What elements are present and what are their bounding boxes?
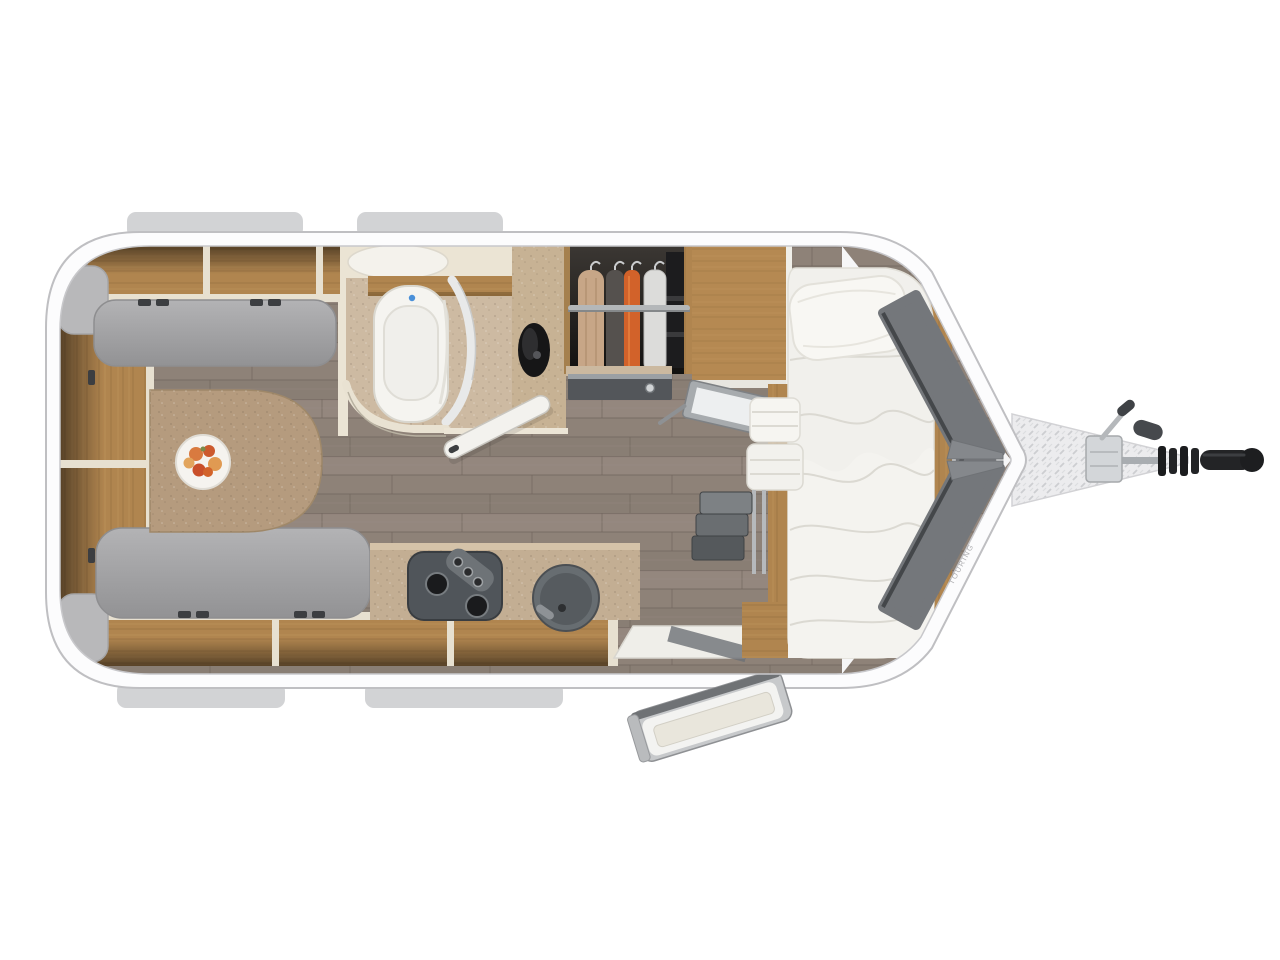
counter-back-edge: [370, 543, 640, 550]
toilet: [374, 286, 448, 422]
cassette-knob: [533, 351, 541, 359]
garment-gray: [606, 270, 624, 382]
top-shelf-divider-2: [316, 246, 323, 298]
garment-white: [644, 270, 666, 372]
step-rail-2: [762, 490, 766, 574]
dinette-bench-top: [94, 300, 336, 366]
wardrobe-drawer-edge: [568, 374, 672, 379]
kitchen: [370, 543, 640, 631]
floorplan-canvas: TOURING: [0, 0, 1280, 960]
bottom-shelf-divider-1: [272, 616, 279, 666]
dinette-bench-bottom: [96, 528, 370, 618]
hob-knob-2: [464, 568, 473, 577]
entry-step: [614, 626, 749, 662]
toilet-seat: [384, 306, 438, 400]
hitch-coupling-head: [1240, 448, 1264, 472]
step-tread-3: [692, 536, 744, 560]
kitchen-sink: [533, 565, 599, 631]
hob-knob-3: [474, 578, 483, 587]
a-frame-hitch: [1012, 398, 1264, 506]
hob-cooktop: [408, 545, 502, 620]
hob-burner-2: [466, 595, 488, 617]
hob-burner-1: [426, 573, 448, 595]
wardrobe-rail-shadow: [568, 310, 690, 312]
coupling-housing: [1086, 436, 1122, 482]
towel-stack: [747, 398, 803, 490]
step-tread-1: [700, 492, 752, 514]
handbrake-lever: [1131, 418, 1164, 442]
rear-shelf-divider: [60, 460, 154, 468]
hob-knob-1: [454, 558, 463, 567]
caravan-interior: [58, 245, 1011, 674]
wardrobe-shelf-2: [666, 332, 684, 337]
step-rail-1: [752, 490, 756, 574]
toilet-flush-button: [409, 295, 415, 301]
bed-foot-panel: [742, 602, 788, 658]
vanity-basin: [348, 245, 448, 279]
fruit-plate: [176, 435, 230, 489]
top-shelf-shadow: [88, 246, 340, 274]
step-tread-2: [696, 514, 748, 536]
bottom-shelf-shadow: [88, 638, 618, 666]
sink-drain: [558, 604, 566, 612]
wardrobe-shelf-1: [666, 296, 684, 301]
bottom-shelf-divider-2: [447, 616, 454, 666]
cabinet-tint: [692, 246, 788, 386]
wardrobe-drawer: [568, 376, 672, 400]
drawer-knob: [646, 384, 655, 393]
garment-orange: [624, 270, 640, 376]
top-shelf-divider-1: [203, 246, 210, 298]
caravan-floorplan-render: TOURING: [0, 0, 1280, 960]
